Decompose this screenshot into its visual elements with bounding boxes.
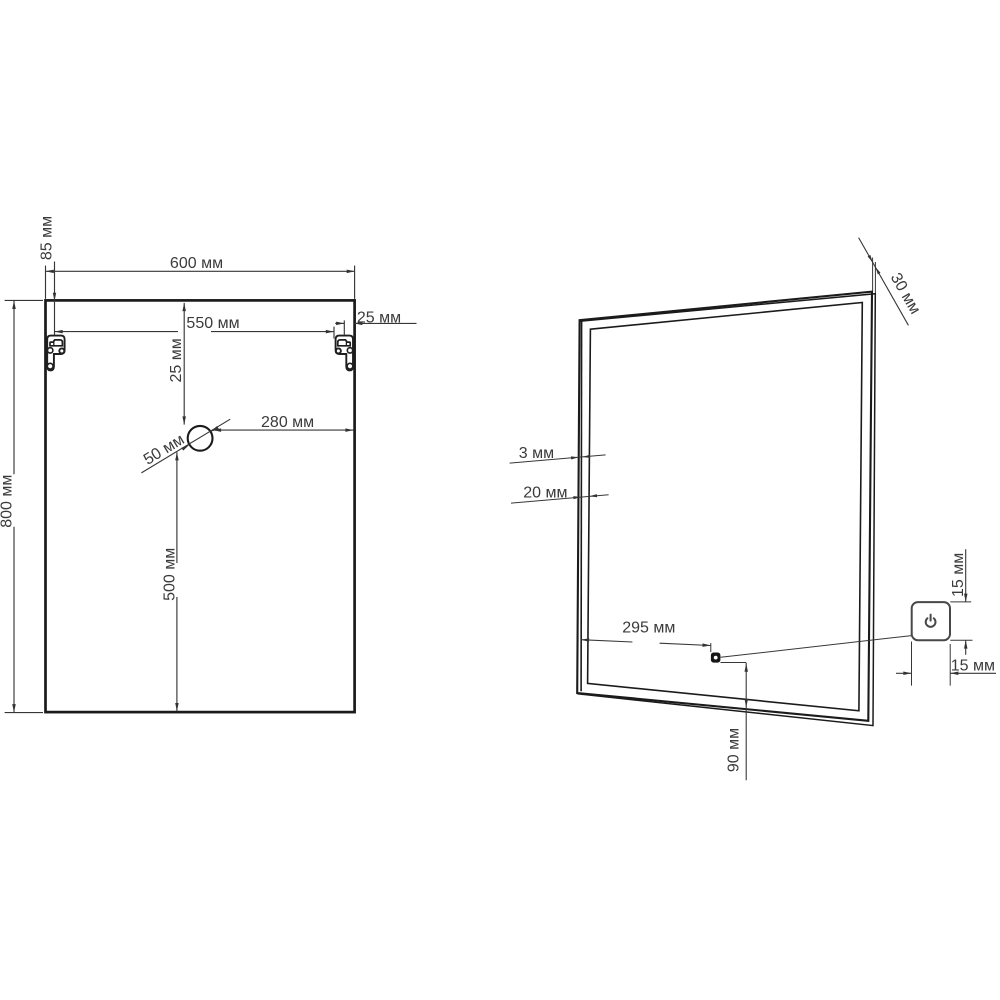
- svg-text:25 мм: 25 мм: [357, 310, 401, 327]
- svg-text:20 мм: 20 мм: [523, 484, 567, 501]
- svg-text:85 мм: 85 мм: [39, 216, 56, 260]
- svg-text:295 мм: 295 мм: [622, 620, 675, 637]
- svg-text:15 мм: 15 мм: [950, 553, 967, 597]
- svg-text:550 мм: 550 мм: [186, 315, 239, 332]
- svg-text:15 мм: 15 мм: [951, 658, 995, 675]
- svg-text:3 мм: 3 мм: [519, 445, 554, 462]
- svg-text:800 мм: 800 мм: [0, 475, 15, 528]
- svg-text:280 мм: 280 мм: [261, 414, 314, 431]
- svg-text:500 мм: 500 мм: [162, 548, 179, 601]
- svg-text:600 мм: 600 мм: [170, 255, 223, 272]
- svg-text:90 мм: 90 мм: [726, 728, 743, 772]
- svg-text:25 мм: 25 мм: [168, 338, 185, 382]
